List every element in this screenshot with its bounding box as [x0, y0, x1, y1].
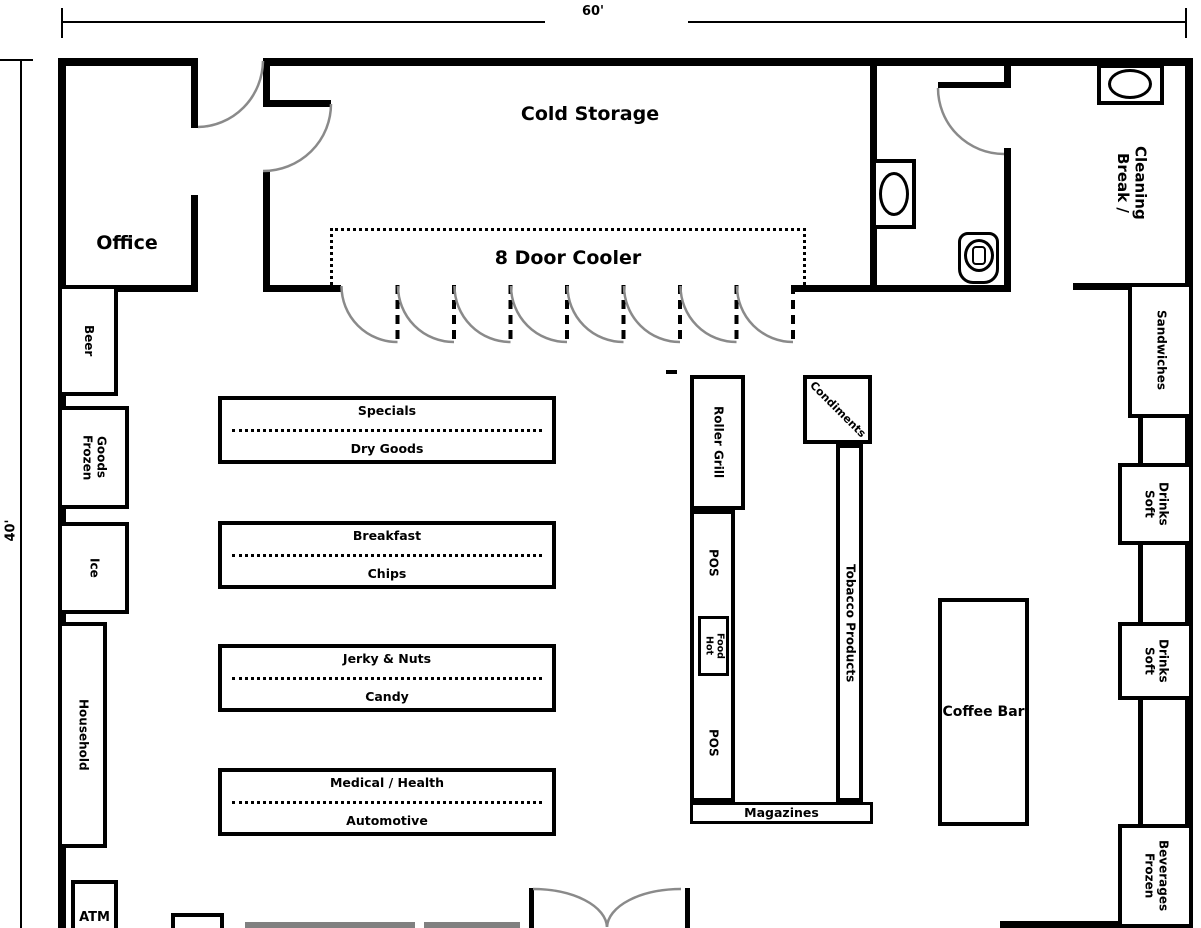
bathroom-wall: [1004, 58, 1011, 88]
shelf-connector: [1138, 700, 1143, 824]
shelf-household-label: Household: [76, 699, 90, 771]
width-dimension: 60': [582, 4, 604, 19]
cold-storage-wall: [263, 58, 270, 104]
hot-food-label: Hot Food: [703, 633, 725, 659]
condiments: Condiments: [803, 375, 872, 444]
shelf-sandwiches-label: Sandwiches: [1154, 310, 1168, 390]
storefront-window: [424, 922, 520, 928]
cooler-door-arc: [342, 286, 398, 342]
pos-top-label: POS: [706, 549, 720, 577]
hot-food: Hot Food: [698, 616, 729, 676]
office-wall: [191, 58, 198, 128]
shelf-household: Household: [58, 622, 107, 848]
aisle-2: Breakfast Chips: [218, 521, 556, 589]
coffee-bar: Coffee Bar: [938, 598, 1029, 826]
cooler-label: 8 Door Cooler: [495, 247, 642, 269]
entry-door-arc-right: [607, 889, 681, 927]
cooler-door-arc: [398, 286, 454, 342]
aisle-3-bottom-label: Candy: [232, 690, 542, 704]
aisle-divider: [232, 677, 542, 680]
aisle-3: Jerky & Nuts Candy: [218, 644, 556, 712]
aisle-2-bottom-label: Chips: [232, 567, 542, 581]
break-room-sink-basin: [1108, 69, 1152, 99]
cooler-outline: 8 Door Cooler: [330, 228, 806, 285]
entry-door-jamb: [529, 888, 534, 928]
magazines: Magazines: [690, 802, 873, 824]
coffee-bar-label: Coffee Bar: [942, 704, 1024, 720]
left-dimension-label: 40': [0, 505, 36, 555]
pos-top-wrap: POS: [694, 530, 731, 596]
aisle-divider: [232, 429, 542, 432]
pos-bottom-label: POS: [706, 729, 720, 757]
bathroom-wall: [870, 285, 1011, 292]
aisle-1-bottom-label: Dry Goods: [232, 442, 542, 456]
shelf-frozen-goods-label: Frozen Goods: [80, 435, 108, 480]
cooler-door-arc: [511, 286, 567, 342]
top-dimension-tick-left: [61, 8, 63, 38]
aisle-4: Medical / Health Automotive: [218, 768, 556, 836]
top-dimension-line: [62, 21, 545, 23]
atm-label: ATM: [79, 910, 110, 925]
cold-storage-wall: [263, 171, 270, 292]
shelf-soft-drinks-2: Soft Drinks: [1118, 622, 1193, 700]
condiments-label: Condiments: [807, 379, 868, 440]
bathroom-door-arc: [938, 88, 1004, 154]
cold-storage-door-arc: [263, 104, 331, 171]
aisle-2-top-label: Breakfast: [232, 529, 542, 543]
cold-storage-door-leaf: [263, 100, 331, 107]
tobacco-products-label: Tobacco Products: [843, 564, 857, 682]
shelf-frozen-beverages-label: Frozen Beverages: [1142, 840, 1170, 911]
top-wall: [263, 58, 1193, 66]
storefront-window: [245, 922, 415, 928]
shelf-connector: [1138, 418, 1143, 463]
cold-storage-label: Cold Storage: [430, 96, 750, 132]
atm: ATM: [71, 880, 118, 928]
shelf-soft-drinks-1-label: Soft Drinks: [1142, 482, 1170, 526]
shelf-connector: [1138, 545, 1143, 622]
bathroom-wall: [1004, 148, 1011, 292]
mark: [666, 370, 677, 374]
shelf-beer: Beer: [58, 285, 118, 396]
height-dimension: 40': [3, 519, 18, 541]
bathroom-wall: [938, 82, 1011, 88]
cold-storage-wall: [263, 285, 341, 292]
tobacco-products: Tobacco Products: [836, 444, 863, 802]
aisle-4-top-label: Medical / Health: [232, 776, 542, 790]
top-dimension-line: [688, 21, 1186, 23]
cold-storage-wall: [791, 285, 877, 292]
shelf-sandwiches: Sandwiches: [1128, 283, 1193, 418]
roller-grill: Roller Grill: [690, 375, 745, 510]
pos-bottom-wrap: POS: [694, 710, 731, 776]
entry-door-arc-left: [533, 889, 607, 927]
cooler-door-arc: [568, 286, 624, 342]
aisle-1: Specials Dry Goods: [218, 396, 556, 464]
bathroom-sink-basin: [879, 172, 909, 216]
top-wall: [58, 58, 198, 66]
cooler-door-arc: [681, 286, 737, 342]
shelf-soft-drinks-1: Soft Drinks: [1118, 463, 1193, 545]
cooler-doors: [342, 285, 794, 342]
left-dimension-line: [20, 60, 22, 928]
aisle-divider: [232, 801, 542, 804]
cooler-door-arc: [737, 286, 793, 342]
shelf-frozen-beverages: Frozen Beverages: [1118, 824, 1193, 928]
entry-door-jamb: [685, 888, 690, 928]
left-dimension-tick-top: [0, 59, 33, 61]
cooler-door-arc: [455, 286, 511, 342]
shelf-ice: Ice: [58, 522, 129, 614]
counter-box: [171, 913, 224, 928]
cooler-door-arc: [624, 286, 680, 342]
aisle-divider: [232, 554, 542, 557]
aisle-4-bottom-label: Automotive: [232, 814, 542, 828]
aisle-3-top-label: Jerky & Nuts: [232, 652, 542, 666]
floor-plan: 60' 40' Office Cold Storage 8 Door Coole…: [0, 0, 1201, 928]
break-room-label: Break / Cleaning: [1114, 146, 1149, 220]
toilet-seat: [972, 246, 986, 265]
shelf-ice-label: Ice: [87, 558, 101, 578]
break-room-label-wrap: Break / Cleaning: [1085, 120, 1177, 245]
top-dimension-tick-right: [1185, 8, 1187, 38]
office-wall: [191, 195, 198, 292]
shelf-soft-drinks-2-label: Soft Drinks: [1142, 639, 1170, 683]
shelf-beer-label: Beer: [81, 325, 95, 356]
shelf-frozen-goods: Frozen Goods: [58, 406, 129, 509]
aisle-1-top-label: Specials: [232, 404, 542, 418]
office-door-arc: [198, 61, 263, 127]
roller-grill-label: Roller Grill: [711, 406, 725, 478]
top-dimension-label: 60': [548, 2, 638, 20]
office-label: Office: [62, 225, 192, 261]
bottom-wall: [1000, 921, 1118, 928]
magazines-label: Magazines: [744, 807, 819, 820]
